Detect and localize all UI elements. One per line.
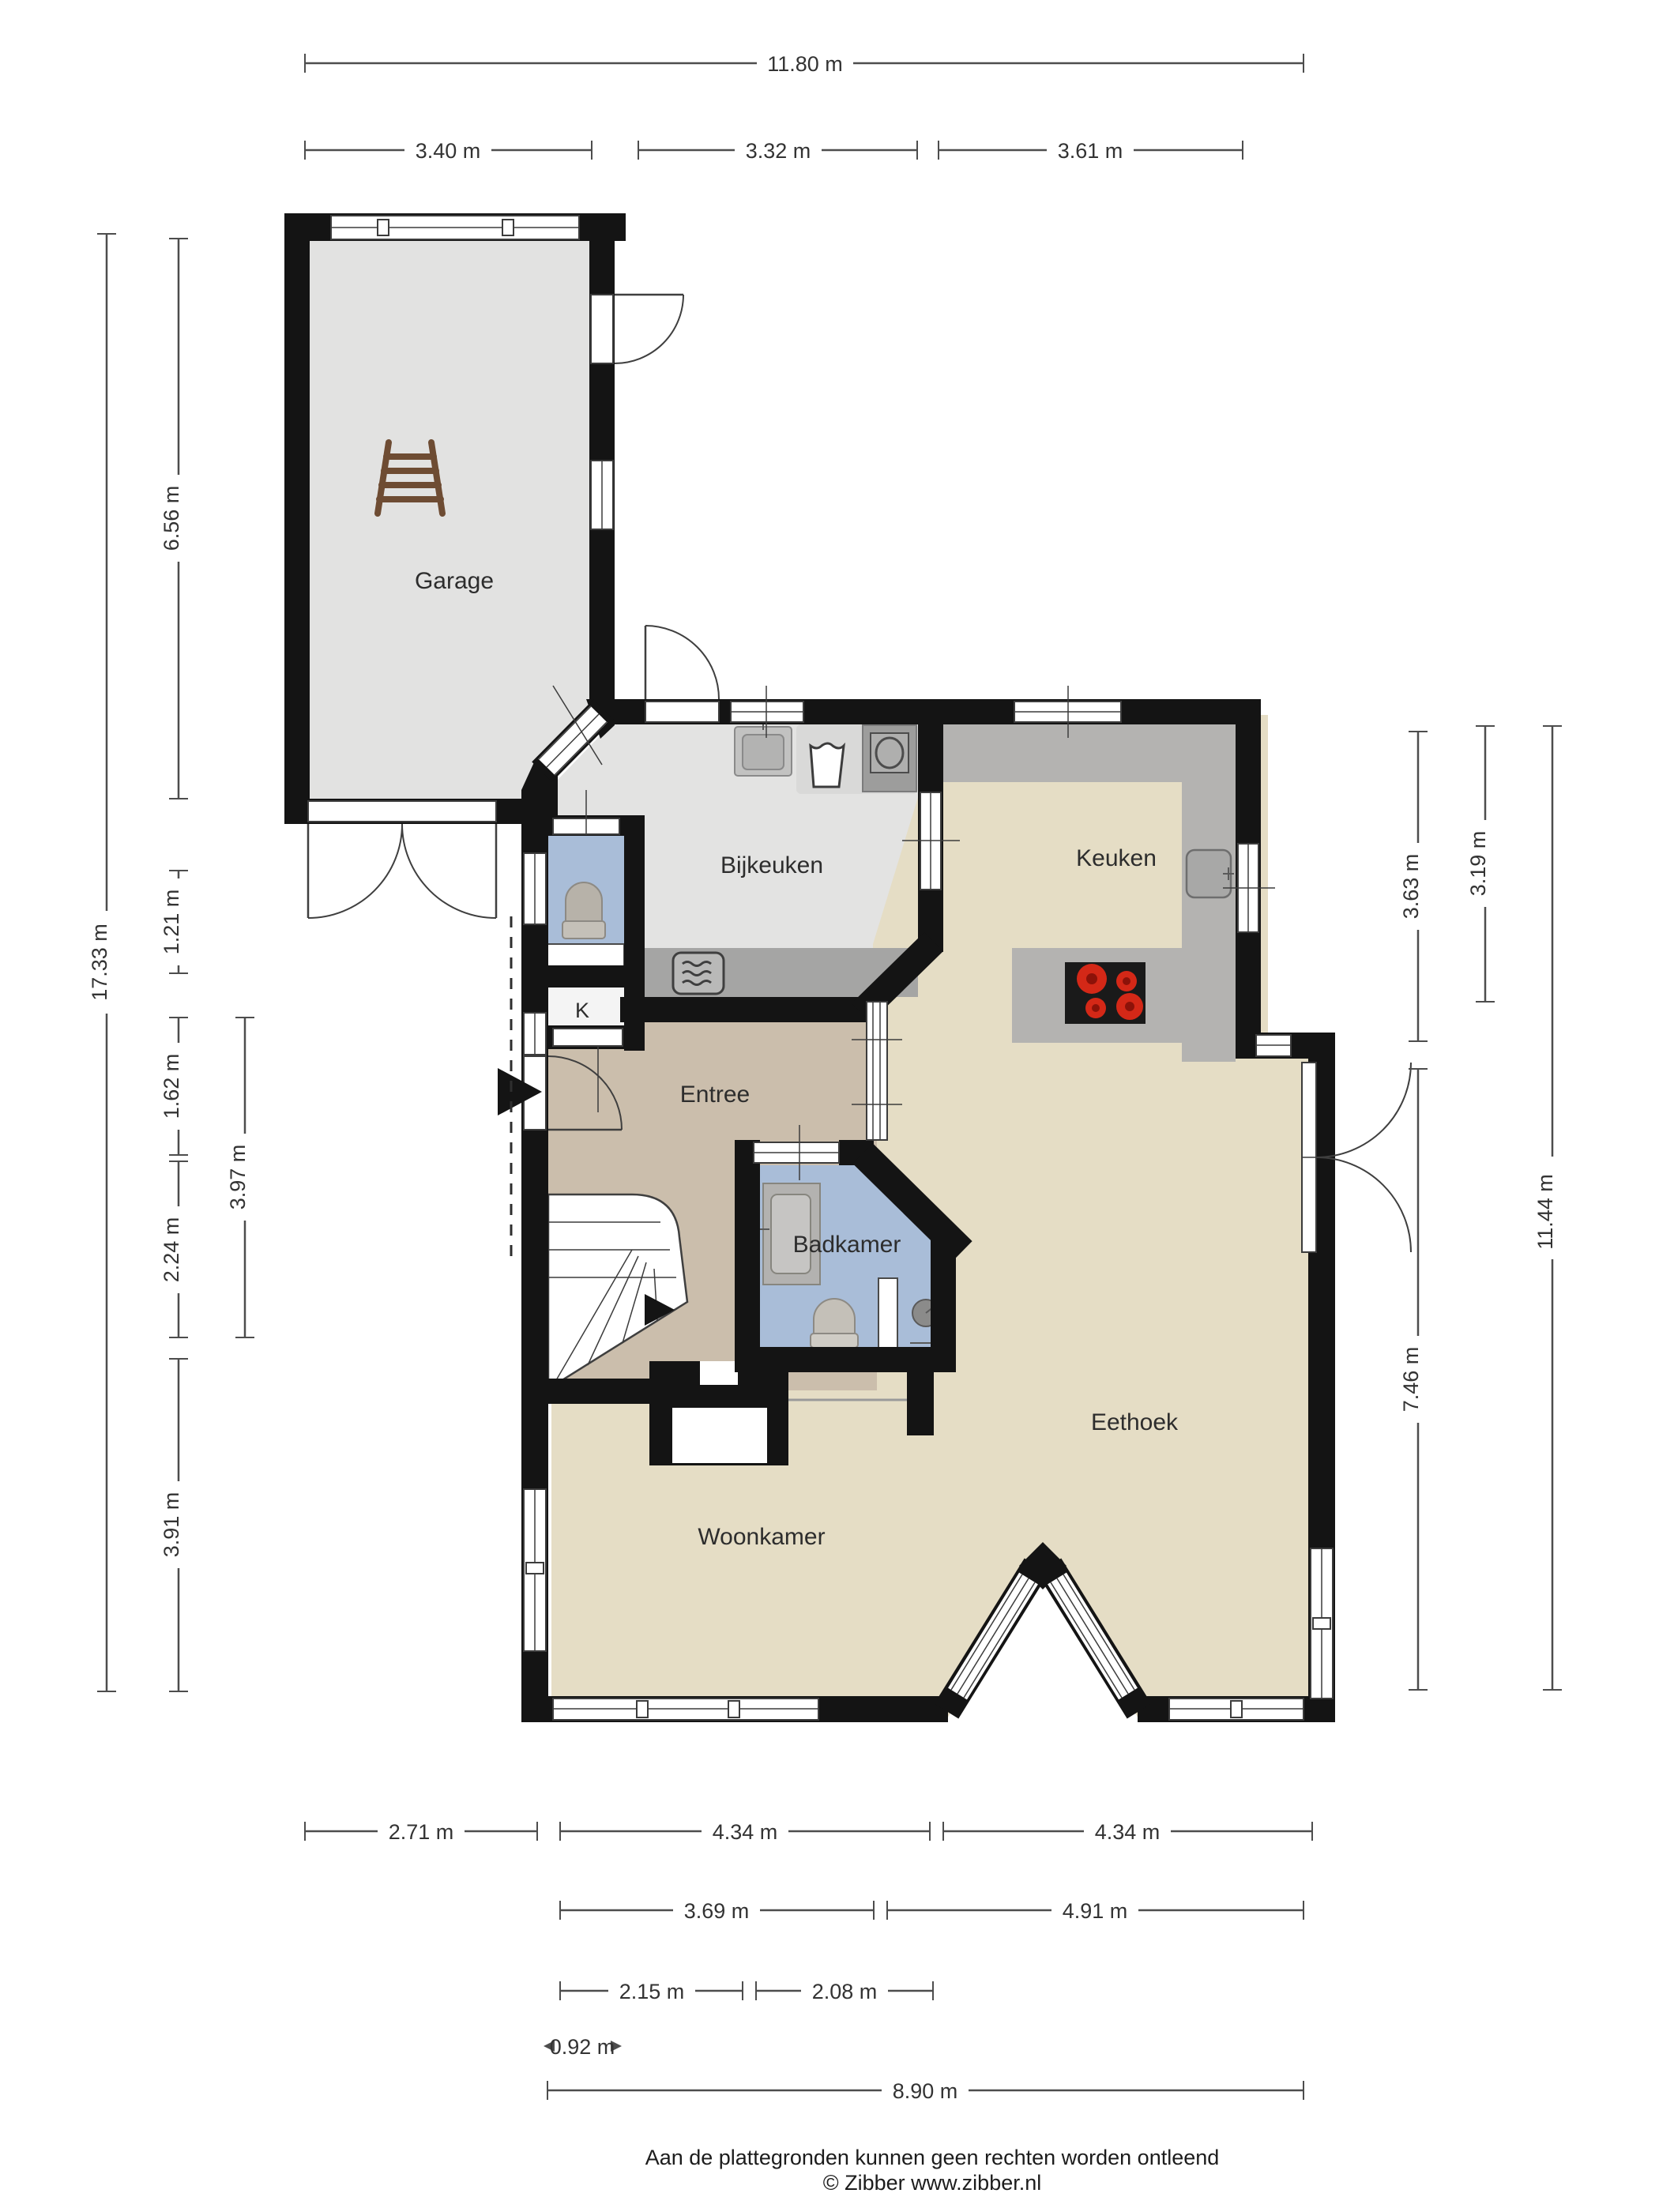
bijkeuken-back-door <box>645 626 719 722</box>
utility-sink-icon <box>735 720 792 776</box>
wc-window <box>524 853 546 924</box>
svg-text:3.63 m: 3.63 m <box>1399 854 1423 920</box>
garage-side-door <box>591 295 683 363</box>
svg-text:4.34 m: 4.34 m <box>1095 1820 1161 1844</box>
svg-text:0.92 m: 0.92 m <box>550 2035 615 2059</box>
washing-machine-icon <box>863 725 916 792</box>
dim-left-entree: 1.62 m <box>160 1018 193 1155</box>
eethoek-east-window <box>1311 1548 1333 1698</box>
floorplan-drawing: Garage Bijkeuken Keuken Entree Badkamer … <box>0 0 1659 2212</box>
dim-top-keuken: 3.61 m <box>939 136 1243 164</box>
keuken-label: Keuken <box>1076 845 1157 871</box>
dim-bottom3-left: 2.15 m <box>560 1977 743 2005</box>
closet-label: K <box>575 999 589 1022</box>
eethoek-south-window <box>1169 1698 1303 1720</box>
svg-text:3.19 m: 3.19 m <box>1466 831 1490 897</box>
svg-text:2.08 m: 2.08 m <box>812 1980 878 2003</box>
entree-label: Entree <box>680 1082 750 1108</box>
svg-text:4.91 m: 4.91 m <box>1063 1899 1128 1923</box>
dim-bottom2-right: 4.91 m <box>887 1896 1303 1924</box>
oven-icon <box>673 953 724 994</box>
dim-bottom-total: 8.90 m <box>547 2076 1303 2105</box>
svg-text:1.62 m: 1.62 m <box>160 1054 183 1119</box>
svg-text:17.33 m: 17.33 m <box>88 924 111 1001</box>
dim-right-eethoek: 7.46 m <box>1399 1069 1432 1690</box>
fireplace <box>649 1361 788 1465</box>
svg-text:11.44 m: 11.44 m <box>1533 1174 1557 1250</box>
woonkamer-south-window <box>553 1698 818 1720</box>
badkamer-label: Badkamer <box>793 1232 901 1258</box>
svg-text:1.21 m: 1.21 m <box>160 890 183 955</box>
woonkamer-label: Woonkamer <box>698 1524 825 1550</box>
eethoek-label: Eethoek <box>1091 1409 1179 1435</box>
dim-left-total: 17.33 m <box>88 234 121 1691</box>
garage-label: Garage <box>415 568 494 594</box>
svg-text:3.91 m: 3.91 m <box>160 1492 183 1558</box>
svg-text:6.56 m: 6.56 m <box>160 486 183 551</box>
footer-copyright: © Zibber www.zibber.nl <box>823 2171 1042 2195</box>
dim-right-keuken-inner: 3.19 m <box>1466 726 1499 1002</box>
laundry-basket-icon <box>811 743 844 787</box>
garage-floor <box>310 239 589 799</box>
svg-text:3.97 m: 3.97 m <box>226 1145 250 1210</box>
svg-text:2.15 m: 2.15 m <box>619 1980 685 2003</box>
front-door-sidelight <box>524 1013 546 1055</box>
svg-text:7.46 m: 7.46 m <box>1399 1347 1423 1413</box>
dim-left-garage: 6.56 m <box>160 239 193 799</box>
floorplan-page: Garage Bijkeuken Keuken Entree Badkamer … <box>0 0 1659 2212</box>
dim-bottom-eethoek: 4.34 m <box>943 1817 1312 1845</box>
dim-left-hal: 3.97 m <box>226 1018 259 1337</box>
dim-bottom-small: 0.92 m <box>544 2035 622 2059</box>
dim-right-total: 11.44 m <box>1533 726 1567 1690</box>
dim-right-keuken: 3.63 m <box>1399 732 1432 1041</box>
dim-left-wc: 1.21 m <box>160 871 193 973</box>
wc-shelf <box>544 944 624 966</box>
svg-text:4.34 m: 4.34 m <box>713 1820 778 1844</box>
step-wall-window <box>1256 1035 1291 1056</box>
wc-toilet-icon <box>562 882 605 939</box>
kitchen-sink-icon <box>1187 850 1234 897</box>
svg-text:2.71 m: 2.71 m <box>389 1820 454 1844</box>
stove-icon <box>1065 962 1145 1024</box>
footer: Aan de plattegronden kunnen geen rechten… <box>645 2146 1220 2195</box>
garage-east-window <box>591 461 613 529</box>
svg-text:3.32 m: 3.32 m <box>746 139 811 163</box>
svg-text:3.61 m: 3.61 m <box>1058 139 1123 163</box>
bath-toilet-icon <box>811 1299 858 1348</box>
dim-top-garage: 3.40 m <box>305 136 592 164</box>
dim-bottom-woonkamer: 4.34 m <box>560 1817 930 1845</box>
dim-left-stairs: 2.24 m <box>160 1161 193 1337</box>
dim-bottom-garage: 2.71 m <box>305 1817 537 1845</box>
dim-top-bijkeuken: 3.32 m <box>638 136 917 164</box>
bijkeuken-label: Bijkeuken <box>720 852 823 878</box>
footer-disclaimer: Aan de plattegronden kunnen geen rechten… <box>645 2146 1220 2169</box>
dim-top-total: 11.80 m <box>305 49 1303 77</box>
svg-text:11.80 m: 11.80 m <box>767 52 843 76</box>
woonkamer-west-window <box>524 1489 546 1651</box>
svg-text:2.24 m: 2.24 m <box>160 1217 183 1283</box>
garage-double-doors <box>308 801 496 918</box>
dim-bottom2-left: 3.69 m <box>560 1896 874 1924</box>
svg-text:3.69 m: 3.69 m <box>684 1899 750 1923</box>
garage-north-window <box>331 216 579 239</box>
svg-text:3.40 m: 3.40 m <box>416 139 481 163</box>
dim-left-woonkamer: 3.91 m <box>160 1359 193 1691</box>
dim-bottom3-right: 2.08 m <box>756 1977 933 2005</box>
svg-text:8.90 m: 8.90 m <box>893 2079 958 2103</box>
